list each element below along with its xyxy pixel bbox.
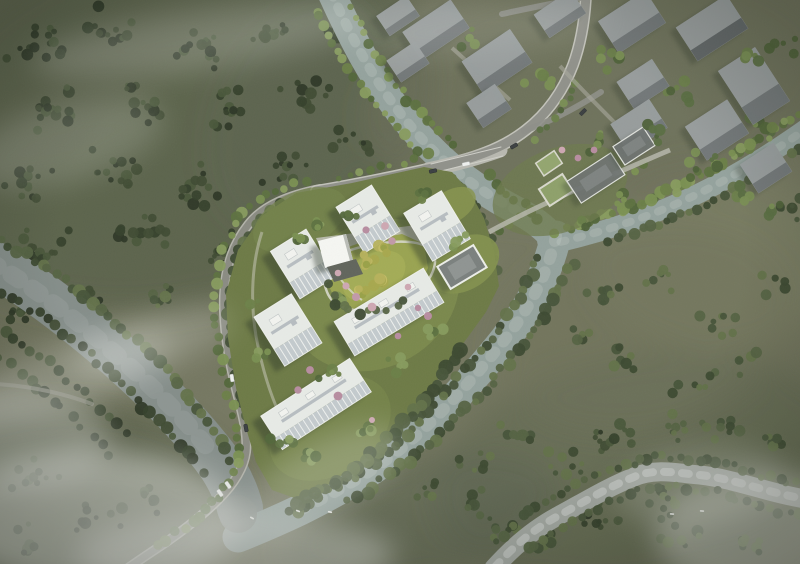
aerial-rendering: Aerial architectural rendering of a rive… — [0, 0, 800, 564]
vignette — [0, 0, 800, 564]
